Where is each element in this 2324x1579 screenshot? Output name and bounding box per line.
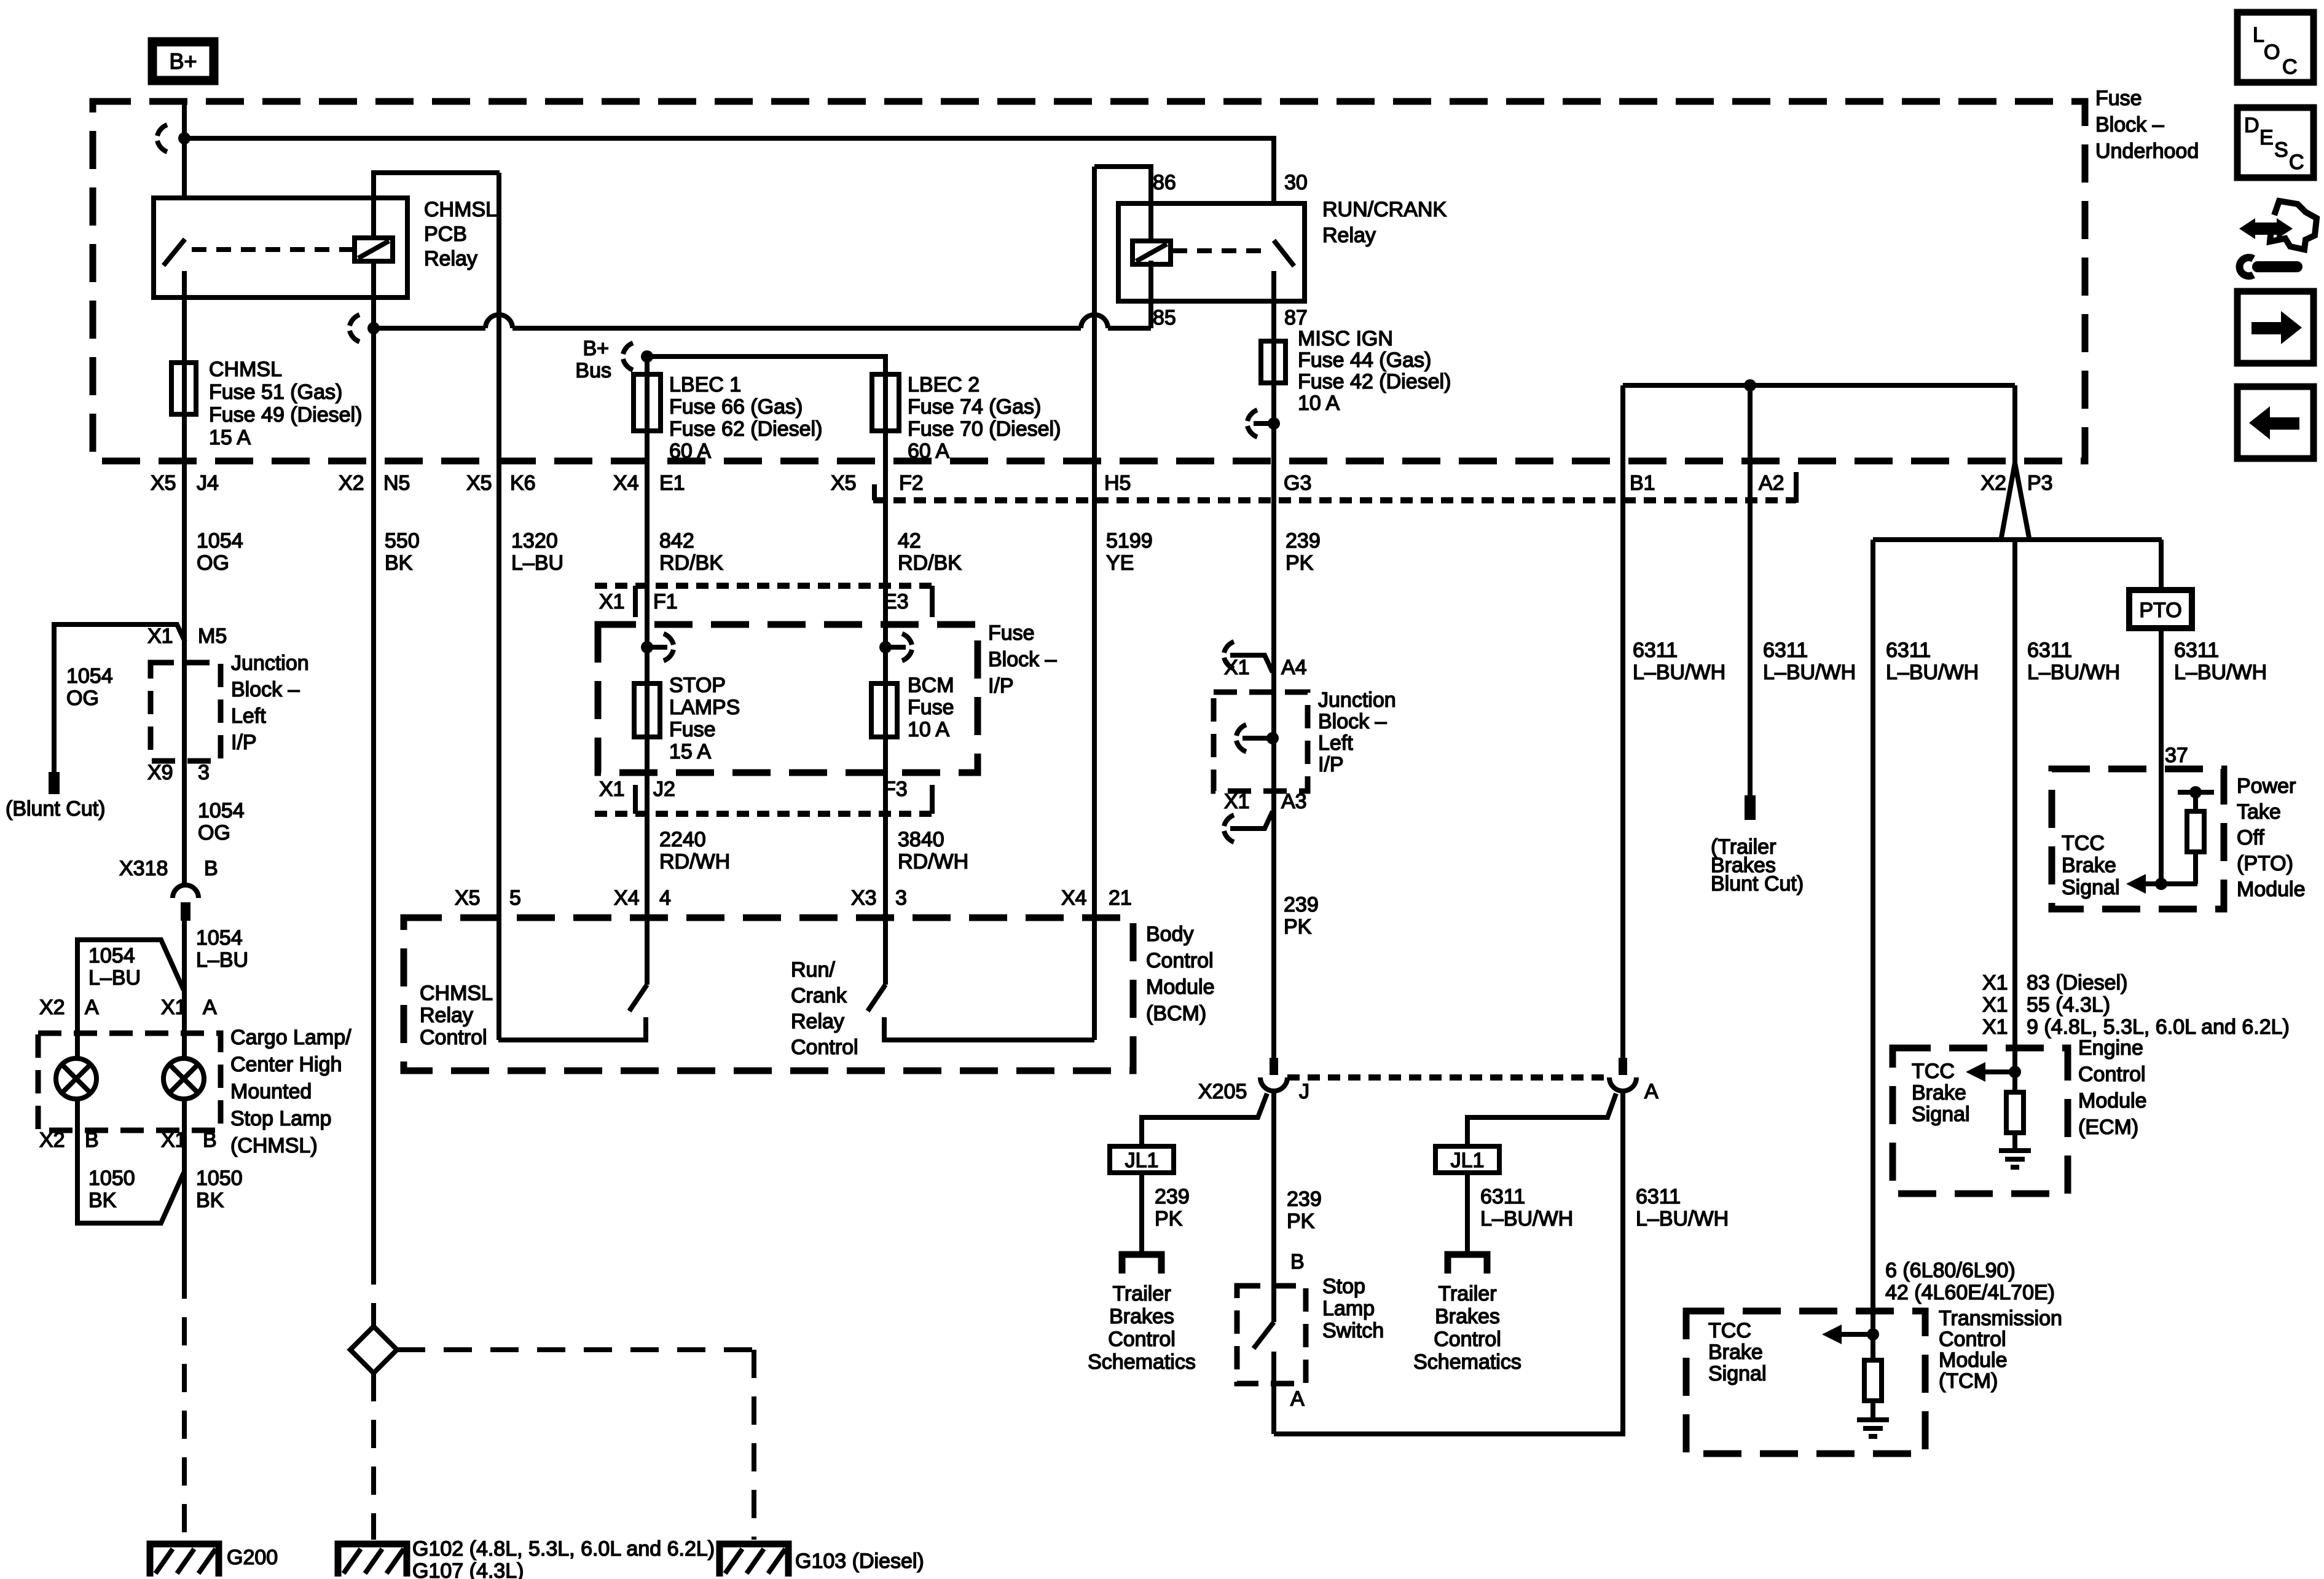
svg-text:X2: X2: [39, 996, 65, 1019]
svg-text:Left: Left: [1318, 731, 1353, 755]
svg-text:OG: OG: [197, 551, 229, 575]
svg-text:L–BU/WH: L–BU/WH: [1633, 661, 1725, 684]
svg-text:X4: X4: [1061, 886, 1087, 910]
svg-text:Block –: Block –: [231, 678, 300, 701]
svg-text:H5: H5: [1104, 471, 1131, 495]
svg-text:Module: Module: [2078, 1089, 2147, 1112]
svg-text:6311: 6311: [2027, 639, 2072, 662]
svg-text:37: 37: [2165, 744, 2188, 767]
svg-text:A: A: [1290, 1387, 1305, 1411]
svg-text:BK: BK: [88, 1189, 117, 1212]
svg-text:1050: 1050: [196, 1167, 243, 1190]
svg-text:6311: 6311: [1636, 1185, 1681, 1208]
svg-text:L–BU/WH: L–BU/WH: [2174, 661, 2267, 684]
svg-text:4: 4: [659, 886, 671, 910]
svg-text:A3: A3: [1281, 790, 1307, 813]
svg-text:X318: X318: [119, 857, 168, 880]
svg-text:Fuse 70 (Diesel): Fuse 70 (Diesel): [908, 417, 1061, 441]
svg-text:TCC: TCC: [2062, 832, 2105, 855]
svg-text:RD/WH: RD/WH: [898, 850, 968, 873]
svg-text:(Blunt Cut): (Blunt Cut): [6, 797, 106, 821]
svg-text:Fuse 49 (Diesel): Fuse 49 (Diesel): [209, 403, 362, 427]
svg-text:G200: G200: [227, 1546, 278, 1569]
svg-text:F1: F1: [653, 590, 678, 613]
svg-text:X1: X1: [1224, 656, 1250, 679]
svg-text:Brake: Brake: [2062, 854, 2116, 877]
svg-text:Brake: Brake: [1912, 1081, 1966, 1105]
svg-text:30: 30: [1284, 171, 1308, 194]
svg-text:Signal: Signal: [1912, 1103, 1970, 1126]
svg-text:J: J: [1299, 1080, 1309, 1103]
svg-text:X2: X2: [339, 471, 364, 495]
svg-text:LAMPS: LAMPS: [669, 696, 740, 719]
svg-text:5199: 5199: [1106, 529, 1153, 553]
svg-text:1054: 1054: [197, 529, 243, 553]
svg-text:RD/WH: RD/WH: [659, 850, 730, 873]
svg-text:RD/BK: RD/BK: [898, 551, 962, 575]
svg-text:3: 3: [198, 761, 210, 784]
svg-text:Brake: Brake: [1708, 1341, 1763, 1364]
svg-text:Block –: Block –: [988, 648, 1057, 671]
svg-text:(BCM): (BCM): [1146, 1002, 1206, 1025]
svg-text:Stop Lamp: Stop Lamp: [230, 1107, 331, 1130]
svg-text:L–BU/WH: L–BU/WH: [1763, 661, 1856, 684]
svg-text:Engine: Engine: [2078, 1036, 2143, 1060]
svg-text:5: 5: [509, 886, 521, 910]
svg-text:CHMSL: CHMSL: [420, 982, 493, 1005]
svg-text:L–BU/WH: L–BU/WH: [1636, 1207, 1729, 1231]
svg-text:1054: 1054: [196, 926, 243, 950]
svg-text:X1: X1: [1982, 971, 2008, 994]
svg-text:Fuse 62 (Diesel): Fuse 62 (Diesel): [669, 417, 822, 441]
svg-text:Control: Control: [1939, 1328, 2006, 1351]
svg-text:Control: Control: [1146, 949, 1214, 972]
svg-text:STOP: STOP: [669, 674, 726, 697]
svg-text:B: B: [85, 1128, 99, 1152]
svg-text:Power: Power: [2237, 774, 2296, 798]
svg-text:L–BU: L–BU: [511, 551, 563, 575]
svg-text:Block –: Block –: [1318, 710, 1387, 733]
svg-text:Center High: Center High: [230, 1053, 342, 1076]
svg-text:42 (4L60E/4L70E): 42 (4L60E/4L70E): [1885, 1281, 2055, 1304]
svg-text:CHMSL: CHMSL: [424, 198, 497, 221]
svg-text:3: 3: [895, 886, 907, 910]
svg-text:Control: Control: [1108, 1328, 1176, 1351]
svg-text:Control: Control: [791, 1036, 858, 1059]
svg-text:1320: 1320: [511, 529, 558, 553]
svg-text:Junction: Junction: [231, 652, 309, 675]
svg-text:Blunt Cut): Blunt Cut): [1711, 872, 1804, 896]
svg-text:Fuse 74 (Gas): Fuse 74 (Gas): [908, 395, 1041, 419]
svg-text:Control: Control: [1434, 1328, 1501, 1351]
svg-text:Trailer: Trailer: [1112, 1282, 1171, 1305]
svg-text:JL1: JL1: [1125, 1149, 1159, 1172]
svg-text:PK: PK: [1284, 915, 1312, 939]
svg-text:J4: J4: [197, 471, 219, 495]
svg-text:3840: 3840: [898, 828, 944, 851]
svg-text:(PTO): (PTO): [2237, 852, 2293, 875]
svg-text:X2: X2: [1981, 471, 2006, 495]
svg-text:M5: M5: [198, 624, 227, 648]
svg-text:239: 239: [1284, 893, 1319, 916]
svg-text:Relay: Relay: [1322, 224, 1376, 247]
svg-text:C: C: [2282, 55, 2298, 79]
svg-text:B+: B+: [583, 337, 609, 360]
svg-text:F2: F2: [899, 471, 924, 495]
svg-text:L–BU/WH: L–BU/WH: [1480, 1207, 1573, 1231]
svg-text:Switch: Switch: [1322, 1319, 1384, 1342]
svg-text:Control: Control: [420, 1026, 487, 1049]
svg-text:A: A: [85, 996, 99, 1019]
svg-text:K6: K6: [510, 471, 536, 495]
svg-text:1050: 1050: [88, 1167, 135, 1190]
svg-text:(CHMSL): (CHMSL): [230, 1134, 318, 1157]
svg-text:B: B: [204, 857, 218, 880]
svg-text:X9: X9: [147, 761, 173, 784]
svg-text:BK: BK: [385, 551, 413, 575]
svg-text:BCM: BCM: [908, 674, 954, 697]
svg-text:L: L: [2253, 23, 2264, 47]
svg-text:G3: G3: [1284, 471, 1311, 495]
svg-text:Control: Control: [2078, 1063, 2146, 1086]
svg-text:550: 550: [385, 529, 420, 553]
svg-text:(ECM): (ECM): [2078, 1116, 2138, 1139]
svg-text:Schematics: Schematics: [1413, 1350, 1521, 1374]
svg-text:LBEC 1: LBEC 1: [669, 373, 741, 396]
svg-text:X5: X5: [455, 886, 481, 910]
svg-text:LBEC 2: LBEC 2: [908, 373, 979, 396]
svg-text:Lamp: Lamp: [1322, 1297, 1375, 1320]
svg-text:Brakes: Brakes: [1435, 1305, 1500, 1328]
svg-text:B1: B1: [1630, 471, 1655, 495]
svg-text:B: B: [203, 1128, 217, 1152]
svg-text:C: C: [2289, 151, 2304, 174]
svg-text:PK: PK: [1287, 1210, 1315, 1233]
svg-text:L–BU: L–BU: [88, 966, 141, 990]
svg-text:Module: Module: [1939, 1349, 2008, 1372]
svg-text:S: S: [2274, 138, 2288, 162]
svg-text:N5: N5: [383, 471, 410, 495]
svg-text:239: 239: [1286, 529, 1321, 553]
svg-text:OG: OG: [198, 821, 230, 845]
svg-text:PCB: PCB: [424, 222, 467, 246]
svg-text:X1: X1: [599, 590, 625, 613]
svg-text:42: 42: [898, 529, 921, 553]
svg-text:PTO: PTO: [2139, 599, 2181, 622]
svg-text:Fuse: Fuse: [908, 696, 954, 719]
svg-text:A: A: [203, 996, 217, 1019]
svg-text:85: 85: [1153, 306, 1176, 329]
svg-text:Underhood: Underhood: [2095, 140, 2199, 163]
svg-text:E: E: [2259, 126, 2274, 149]
svg-text:X5: X5: [831, 471, 857, 495]
svg-text:X5: X5: [151, 471, 176, 495]
svg-text:X5: X5: [466, 471, 492, 495]
svg-text:A2: A2: [1759, 471, 1784, 495]
svg-text:Relay: Relay: [420, 1004, 473, 1027]
svg-text:MISC IGN: MISC IGN: [1298, 327, 1393, 350]
svg-text:Fuse: Fuse: [669, 718, 716, 741]
svg-text:TCC: TCC: [1912, 1060, 1955, 1083]
svg-text:L–BU: L–BU: [196, 948, 248, 972]
svg-text:Relay: Relay: [791, 1010, 844, 1033]
svg-text:Module: Module: [1146, 975, 1215, 999]
svg-text:6311: 6311: [1763, 639, 1808, 662]
svg-text:X1: X1: [599, 778, 625, 801]
svg-text:Block –: Block –: [2095, 113, 2164, 136]
svg-text:X1: X1: [147, 624, 173, 648]
svg-text:G107 (4.3L): G107 (4.3L): [412, 1559, 524, 1579]
svg-text:Mounted: Mounted: [230, 1080, 312, 1103]
svg-text:86: 86: [1153, 171, 1176, 194]
svg-text:YE: YE: [1106, 551, 1134, 575]
svg-text:Bus: Bus: [575, 359, 611, 382]
svg-text:F3: F3: [883, 778, 908, 801]
svg-text:239: 239: [1287, 1187, 1322, 1211]
svg-text:Fuse 66 (Gas): Fuse 66 (Gas): [669, 395, 803, 419]
svg-text:OG: OG: [66, 687, 99, 710]
svg-text:Brakes: Brakes: [1109, 1305, 1174, 1328]
svg-text:Module: Module: [2237, 878, 2306, 901]
svg-text:1054: 1054: [88, 944, 135, 967]
svg-text:55 (4.3L): 55 (4.3L): [2027, 993, 2110, 1017]
svg-text:Take: Take: [2237, 800, 2281, 824]
svg-text:Fuse: Fuse: [988, 621, 1035, 645]
svg-text:G102 (4.8L, 5.3L, 6.0L and 6.2: G102 (4.8L, 5.3L, 6.0L and 6.2L): [412, 1537, 715, 1561]
svg-text:Stop: Stop: [1322, 1275, 1365, 1298]
svg-text:Trailer: Trailer: [1438, 1282, 1496, 1305]
svg-text:X4: X4: [613, 471, 639, 495]
svg-text:Left: Left: [231, 704, 266, 728]
svg-text:E1: E1: [659, 471, 685, 495]
svg-text:Junction: Junction: [1318, 688, 1396, 712]
svg-text:I/P: I/P: [1318, 753, 1344, 776]
svg-text:E3: E3: [883, 590, 909, 613]
svg-text:1054: 1054: [66, 664, 113, 688]
svg-text:10 A: 10 A: [1298, 392, 1340, 415]
svg-text:6311: 6311: [2174, 639, 2219, 662]
svg-text:RD/BK: RD/BK: [659, 551, 723, 575]
svg-text:G103 (Diesel): G103 (Diesel): [795, 1549, 924, 1573]
svg-text:Crank: Crank: [791, 984, 847, 1007]
svg-text:D: D: [2244, 114, 2259, 137]
svg-text:A: A: [1644, 1080, 1659, 1103]
svg-text:X3: X3: [851, 886, 877, 910]
svg-text:6311: 6311: [1633, 639, 1678, 662]
svg-text:239: 239: [1155, 1185, 1190, 1208]
svg-text:83 (Diesel): 83 (Diesel): [2027, 971, 2127, 994]
svg-text:B+: B+: [169, 49, 197, 74]
svg-text:X1: X1: [161, 996, 187, 1019]
svg-text:87: 87: [1284, 306, 1308, 329]
svg-text:Cargo Lamp/: Cargo Lamp/: [230, 1026, 351, 1049]
svg-text:15 A: 15 A: [209, 426, 251, 449]
svg-text:X4: X4: [614, 886, 640, 910]
svg-text:60 A: 60 A: [908, 439, 949, 463]
svg-text:X2: X2: [39, 1128, 65, 1152]
svg-text:6 (6L80/6L90): 6 (6L80/6L90): [1885, 1259, 2016, 1282]
svg-text:BK: BK: [196, 1189, 224, 1212]
svg-text:J2: J2: [653, 778, 675, 801]
svg-text:6311: 6311: [1480, 1185, 1525, 1208]
svg-text:(TCM): (TCM): [1939, 1369, 1998, 1393]
svg-text:RUN/CRANK: RUN/CRANK: [1322, 198, 1447, 221]
svg-text:A4: A4: [1281, 656, 1307, 679]
svg-text:Schematics: Schematics: [1088, 1350, 1196, 1374]
svg-text:21: 21: [1109, 886, 1132, 910]
svg-text:P3: P3: [2027, 471, 2053, 495]
svg-text:Signal: Signal: [2062, 876, 2120, 899]
svg-text:PK: PK: [1286, 551, 1314, 575]
svg-text:Off: Off: [2237, 826, 2264, 849]
svg-text:Fuse: Fuse: [2095, 87, 2142, 110]
svg-text:15 A: 15 A: [669, 740, 711, 763]
svg-text:Fuse 51 (Gas): Fuse 51 (Gas): [209, 380, 342, 404]
svg-text:Fuse 44 (Gas): Fuse 44 (Gas): [1298, 348, 1431, 372]
svg-text:Relay: Relay: [424, 247, 477, 270]
svg-text:X205: X205: [1198, 1080, 1247, 1103]
svg-text:10 A: 10 A: [908, 718, 949, 741]
svg-text:I/P: I/P: [988, 674, 1014, 698]
svg-text:L–BU/WH: L–BU/WH: [1886, 661, 1979, 684]
svg-text:X1: X1: [1982, 1015, 2008, 1039]
svg-text:Transmission: Transmission: [1939, 1307, 2062, 1330]
svg-text:2240: 2240: [659, 828, 706, 851]
svg-text:L–BU/WH: L–BU/WH: [2027, 661, 2120, 684]
svg-text:CHMSL: CHMSL: [209, 358, 282, 381]
svg-text:Body: Body: [1146, 923, 1194, 946]
svg-text:PK: PK: [1155, 1207, 1183, 1231]
svg-text:TCC: TCC: [1708, 1319, 1751, 1342]
svg-text:B: B: [1290, 1250, 1305, 1274]
svg-text:842: 842: [659, 529, 694, 553]
svg-text:X1: X1: [1982, 993, 2008, 1017]
svg-text:6311: 6311: [1886, 639, 1931, 662]
svg-text:1054: 1054: [198, 799, 245, 822]
svg-text:JL1: JL1: [1451, 1149, 1485, 1172]
svg-text:X1: X1: [1224, 790, 1250, 813]
svg-text:60 A: 60 A: [669, 439, 711, 463]
svg-text:Signal: Signal: [1708, 1362, 1767, 1385]
svg-text:Fuse 42 (Diesel): Fuse 42 (Diesel): [1298, 370, 1451, 393]
svg-text:O: O: [2264, 41, 2280, 64]
svg-text:I/P: I/P: [231, 731, 257, 754]
svg-text:9 (4.8L, 5.3L, 6.0L and 6.2L): 9 (4.8L, 5.3L, 6.0L and 6.2L): [2027, 1015, 2290, 1039]
svg-text:Run/: Run/: [791, 958, 835, 982]
